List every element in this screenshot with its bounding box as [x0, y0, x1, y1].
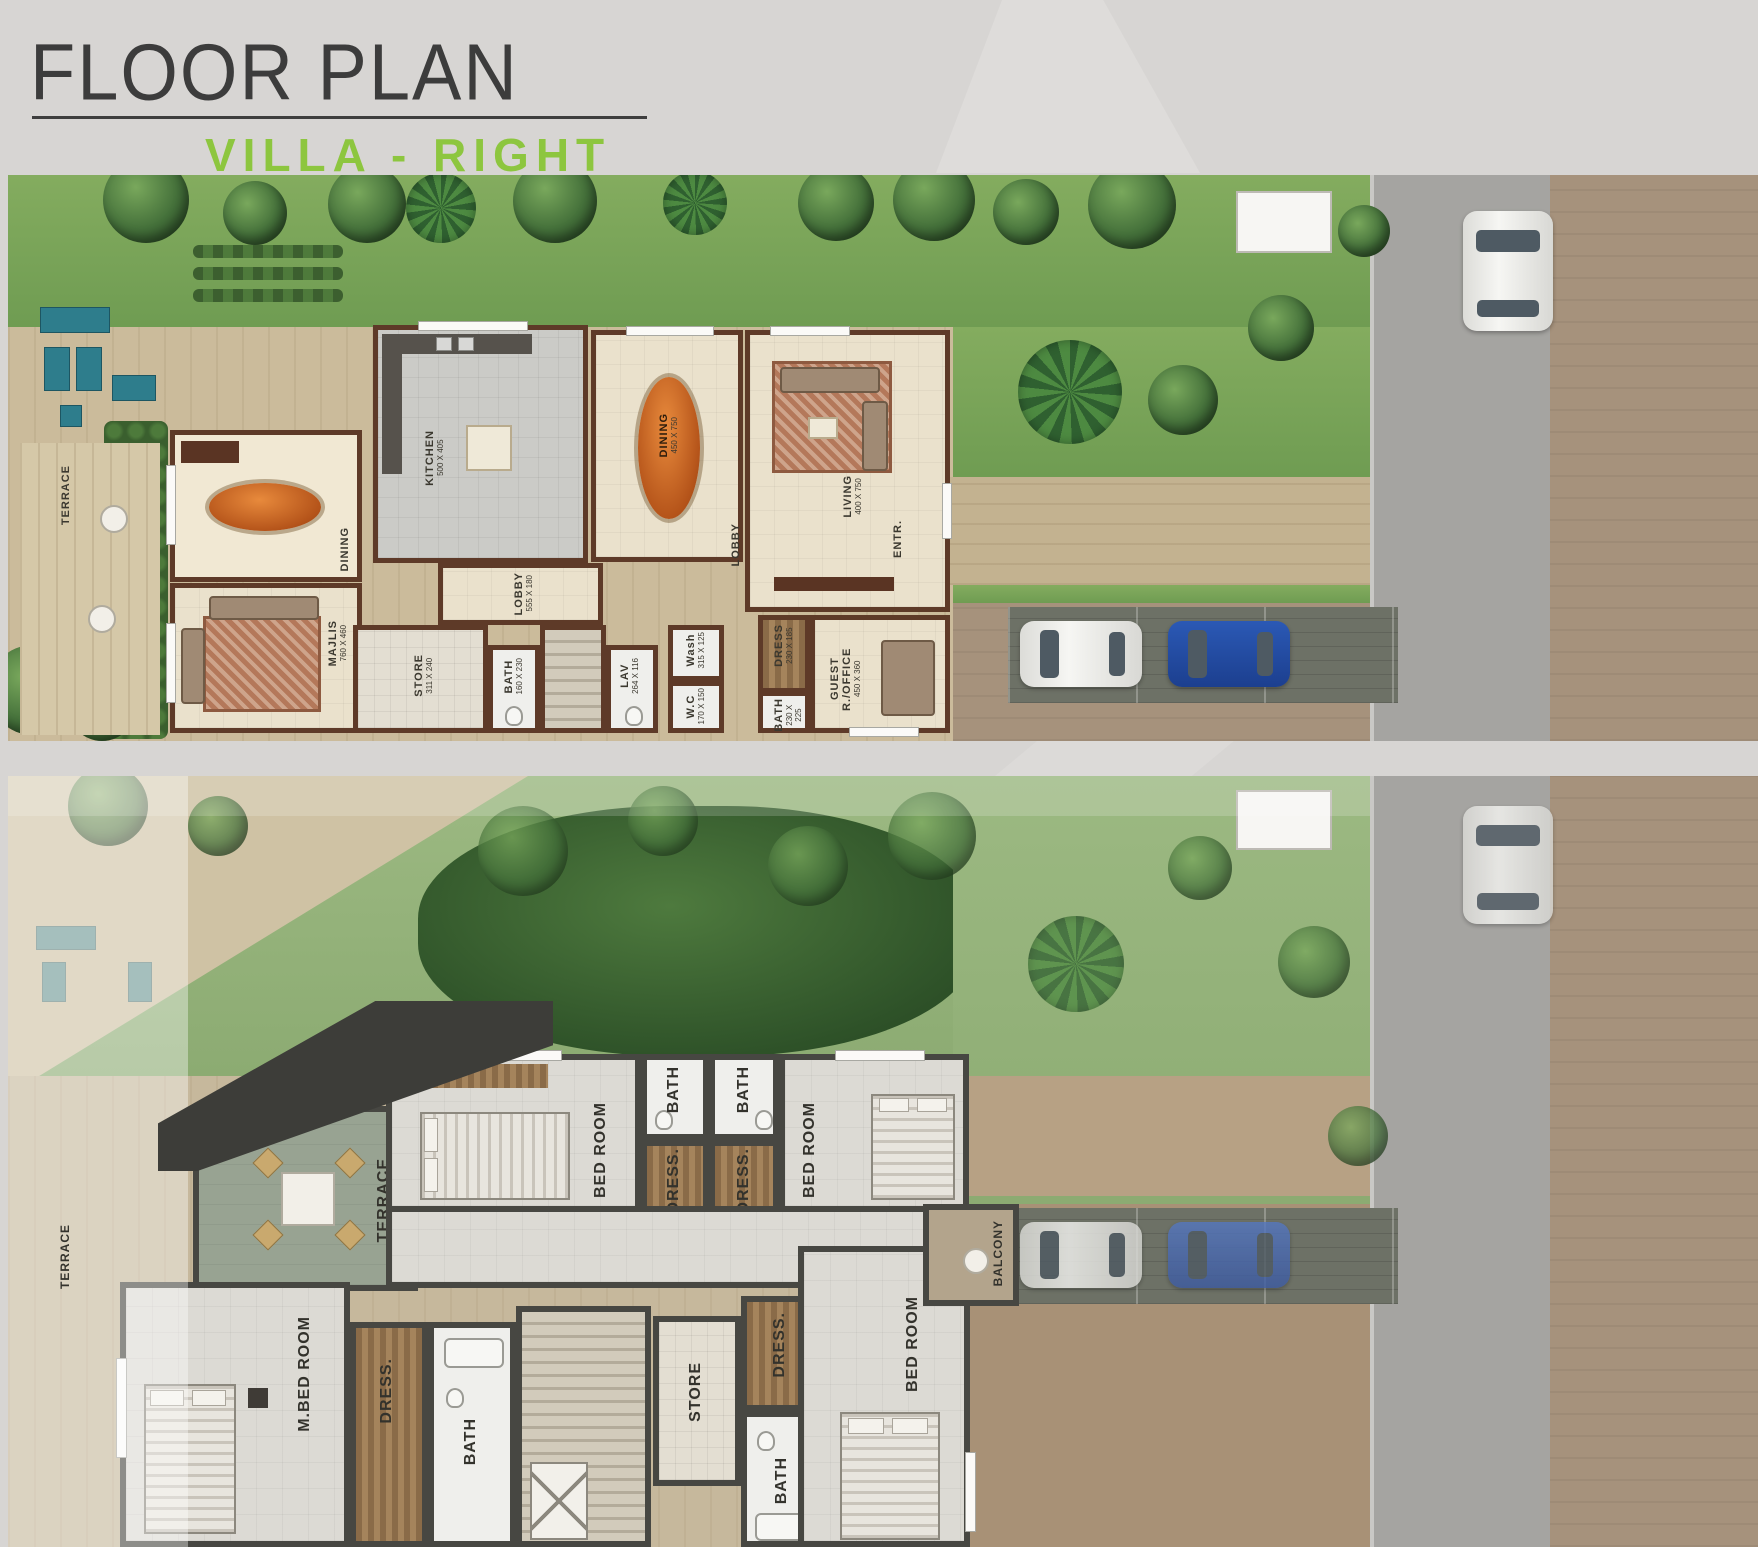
store-ff-label: STORE [687, 1362, 705, 1422]
white-car-road [1463, 806, 1553, 924]
hedge [193, 289, 343, 302]
garden-table [60, 405, 82, 427]
tree [993, 179, 1059, 245]
balcony-table [963, 1248, 989, 1274]
tree [478, 806, 568, 896]
blue-car [1168, 621, 1290, 687]
terrace-chair [252, 1147, 283, 1178]
room-dress-gf: DRESS230 X 185 [758, 615, 810, 693]
tree [1248, 295, 1314, 361]
kitchen-counter [382, 354, 402, 474]
tree [1278, 926, 1350, 998]
tree [768, 826, 848, 906]
floor-plan-page: FLOOR PLAN VILLA - RIGHT [0, 0, 1758, 1547]
garden-lounger [42, 962, 66, 1002]
staircase-ff [516, 1306, 651, 1547]
terrace-chair [334, 1147, 365, 1178]
garden-lounger [128, 962, 152, 1002]
room-bath-tr: BATH [709, 1054, 779, 1140]
garage-canopy [1236, 191, 1332, 253]
bath-tl-label: BATH [665, 1066, 683, 1113]
kitchen-counter [382, 334, 532, 354]
room-living: LIVING400 X 750 ENTR. [745, 330, 950, 612]
window [835, 1050, 925, 1061]
dining-left-label: DINING [339, 527, 351, 572]
pillow [892, 1418, 928, 1434]
stair-landing [530, 1462, 588, 1540]
room-lobby: LOBBY555 X 180 [438, 563, 603, 625]
dining-label: DINING450 X 750 [658, 413, 679, 458]
page-subtitle: VILLA - RIGHT [205, 128, 611, 182]
white-car [1020, 1222, 1142, 1288]
toilet [625, 706, 643, 726]
garden-sofa [40, 307, 110, 333]
window [166, 623, 176, 703]
pavement [1550, 175, 1758, 741]
room-wc: W.C170 X 150 [668, 681, 724, 733]
tree [888, 792, 976, 880]
hedge [193, 267, 343, 280]
tree [188, 796, 248, 856]
garden-lounger [76, 347, 102, 391]
staircase [540, 625, 606, 733]
room-bedroom-tr: BED ROOM [779, 1054, 969, 1212]
pillow [424, 1118, 438, 1152]
kitchen-sink [436, 337, 452, 351]
majlis-label: MAJLIS760 X 460 [327, 620, 348, 666]
lobby-label: LOBBY555 X 180 [513, 572, 534, 616]
room-bath-m: BATH [428, 1322, 516, 1547]
divider-swoosh [995, 740, 1235, 776]
room-dining: DINING450 X 750 [591, 330, 743, 562]
dress-m-label: DRESS. [378, 1358, 396, 1424]
room-bath2: BATH230 X 225 [758, 691, 810, 733]
toilet [755, 1110, 773, 1130]
front-door [942, 483, 952, 539]
lobby2-label: LOBBY [730, 523, 742, 567]
page-title: FLOOR PLAN [30, 26, 519, 118]
room-store: STORE311 X 240 [353, 625, 488, 733]
bedroom-tl-label: BED ROOM [592, 1102, 610, 1198]
white-car [1020, 621, 1142, 687]
room-dress-m: DRESS. [350, 1322, 428, 1547]
bed [144, 1384, 236, 1534]
window [770, 326, 850, 336]
coffee-table [808, 417, 838, 439]
patio-table [88, 605, 116, 633]
pillow [848, 1418, 884, 1434]
master-bedroom-label: M.BED ROOM [296, 1316, 314, 1432]
window [626, 326, 714, 336]
dress-gf-label: DRESS230 X 185 [773, 624, 794, 667]
living-label: LIVING400 X 750 [842, 475, 863, 518]
bath-b-label: BATH [773, 1457, 791, 1504]
window [166, 465, 176, 545]
pavement [1550, 776, 1758, 1547]
header-swoosh [760, 0, 1200, 173]
toilet [757, 1431, 775, 1451]
white-car-road [1463, 211, 1553, 331]
terrace-deck [20, 443, 160, 735]
terrace-garden-label: TERRACE [58, 1224, 72, 1289]
terrace-chair [334, 1219, 365, 1250]
toilet [446, 1388, 464, 1408]
garden-lounger [44, 347, 70, 391]
entr-label: ENTR. [892, 520, 904, 558]
palm-tree [1018, 340, 1122, 444]
wc-label: W.C170 X 150 [685, 688, 706, 724]
room-guest-office: GUEST R./OFFICE450 X 360 [810, 615, 950, 733]
bed [420, 1112, 570, 1200]
sideboard [774, 577, 894, 591]
pillow [192, 1390, 226, 1406]
bath2-label: BATH230 X 225 [773, 698, 803, 732]
terrace-chair [252, 1219, 283, 1250]
room-store-ff: STORE [653, 1316, 741, 1486]
room-bath1: BATH160 X 230 [488, 645, 540, 733]
dining-left-table [209, 483, 321, 531]
toilet [505, 706, 523, 726]
sofa [181, 628, 205, 704]
store-label: STORE311 X 240 [413, 654, 434, 697]
room-kitchen: KITCHEN500 X 405 [373, 325, 588, 563]
bath-m-label: BATH [462, 1418, 480, 1465]
sofa [780, 367, 880, 393]
grass [953, 585, 1370, 603]
room-dining-left: DINING [170, 430, 362, 582]
pillow [150, 1390, 184, 1406]
blue-car [1168, 1222, 1290, 1288]
tree [223, 181, 287, 245]
garden-lounger [112, 375, 156, 401]
tree [1328, 1106, 1388, 1166]
kitchen-table [466, 425, 512, 471]
majlis-rug [203, 616, 321, 712]
guest-sofa-bed [881, 640, 935, 716]
wash-label: Wash315 X 125 [685, 632, 706, 668]
balcony-label: BALCONY [991, 1220, 1005, 1286]
room-dress-tr: DRESS. [709, 1140, 779, 1212]
bedroom-tr-label: BED ROOM [801, 1102, 819, 1198]
pillow [879, 1098, 909, 1112]
window [965, 1452, 976, 1532]
bedroom-br-label: BED ROOM [904, 1296, 922, 1392]
room-dress-tl: DRESS. [641, 1140, 709, 1212]
room-balcony: BALCONY [923, 1204, 1019, 1306]
window [849, 727, 919, 737]
dress-tl-label: DRESS. [665, 1148, 683, 1214]
sofa [862, 401, 888, 471]
tree [1148, 365, 1218, 435]
kitchen-label: KITCHEN500 X 405 [424, 430, 445, 486]
ground-floor-plan: TERRACE KITCHEN500 X 405 DINING450 X 750 [8, 175, 1758, 741]
tree [1168, 836, 1232, 900]
lav-label: LAV264 X 116 [619, 658, 640, 694]
palm-tree [1028, 916, 1124, 1012]
bath-tr-label: BATH [735, 1066, 753, 1113]
patio-table [100, 505, 128, 533]
palm-tree [406, 175, 476, 243]
window [116, 1358, 127, 1458]
bathtub [444, 1338, 504, 1368]
title-underline [32, 116, 647, 119]
terrace-table [281, 1172, 335, 1226]
guest-label: GUEST R./OFFICE450 X 360 [829, 630, 862, 728]
room-lav: LAV264 X 116 [606, 645, 658, 733]
piano [181, 441, 239, 463]
tree [628, 786, 698, 856]
terrace-label: TERRACE [60, 465, 72, 525]
room-wash: Wash315 X 125 [668, 625, 724, 681]
pillow [917, 1098, 947, 1112]
hedge [193, 245, 343, 258]
tree [1338, 205, 1390, 257]
room-master-bedroom: M.BED ROOM [120, 1282, 350, 1547]
garage-canopy [1236, 790, 1332, 850]
room-majlis: MAJLIS760 X 460 [170, 583, 362, 733]
sofa [209, 596, 319, 620]
nightstand [248, 1388, 268, 1408]
pillow [424, 1158, 438, 1192]
bath1-label: BATH160 X 230 [503, 658, 524, 694]
kitchen-sink [458, 337, 474, 351]
room-bath-tl: BATH [641, 1054, 709, 1140]
window [418, 321, 528, 331]
dress-b-label: DRESS. [771, 1312, 789, 1378]
garden-sofa [36, 926, 96, 950]
first-floor-plan: TERRACE TERRACE BED ROOM BATH BATH [8, 776, 1758, 1547]
dress-tr-label: DRESS. [735, 1148, 753, 1214]
